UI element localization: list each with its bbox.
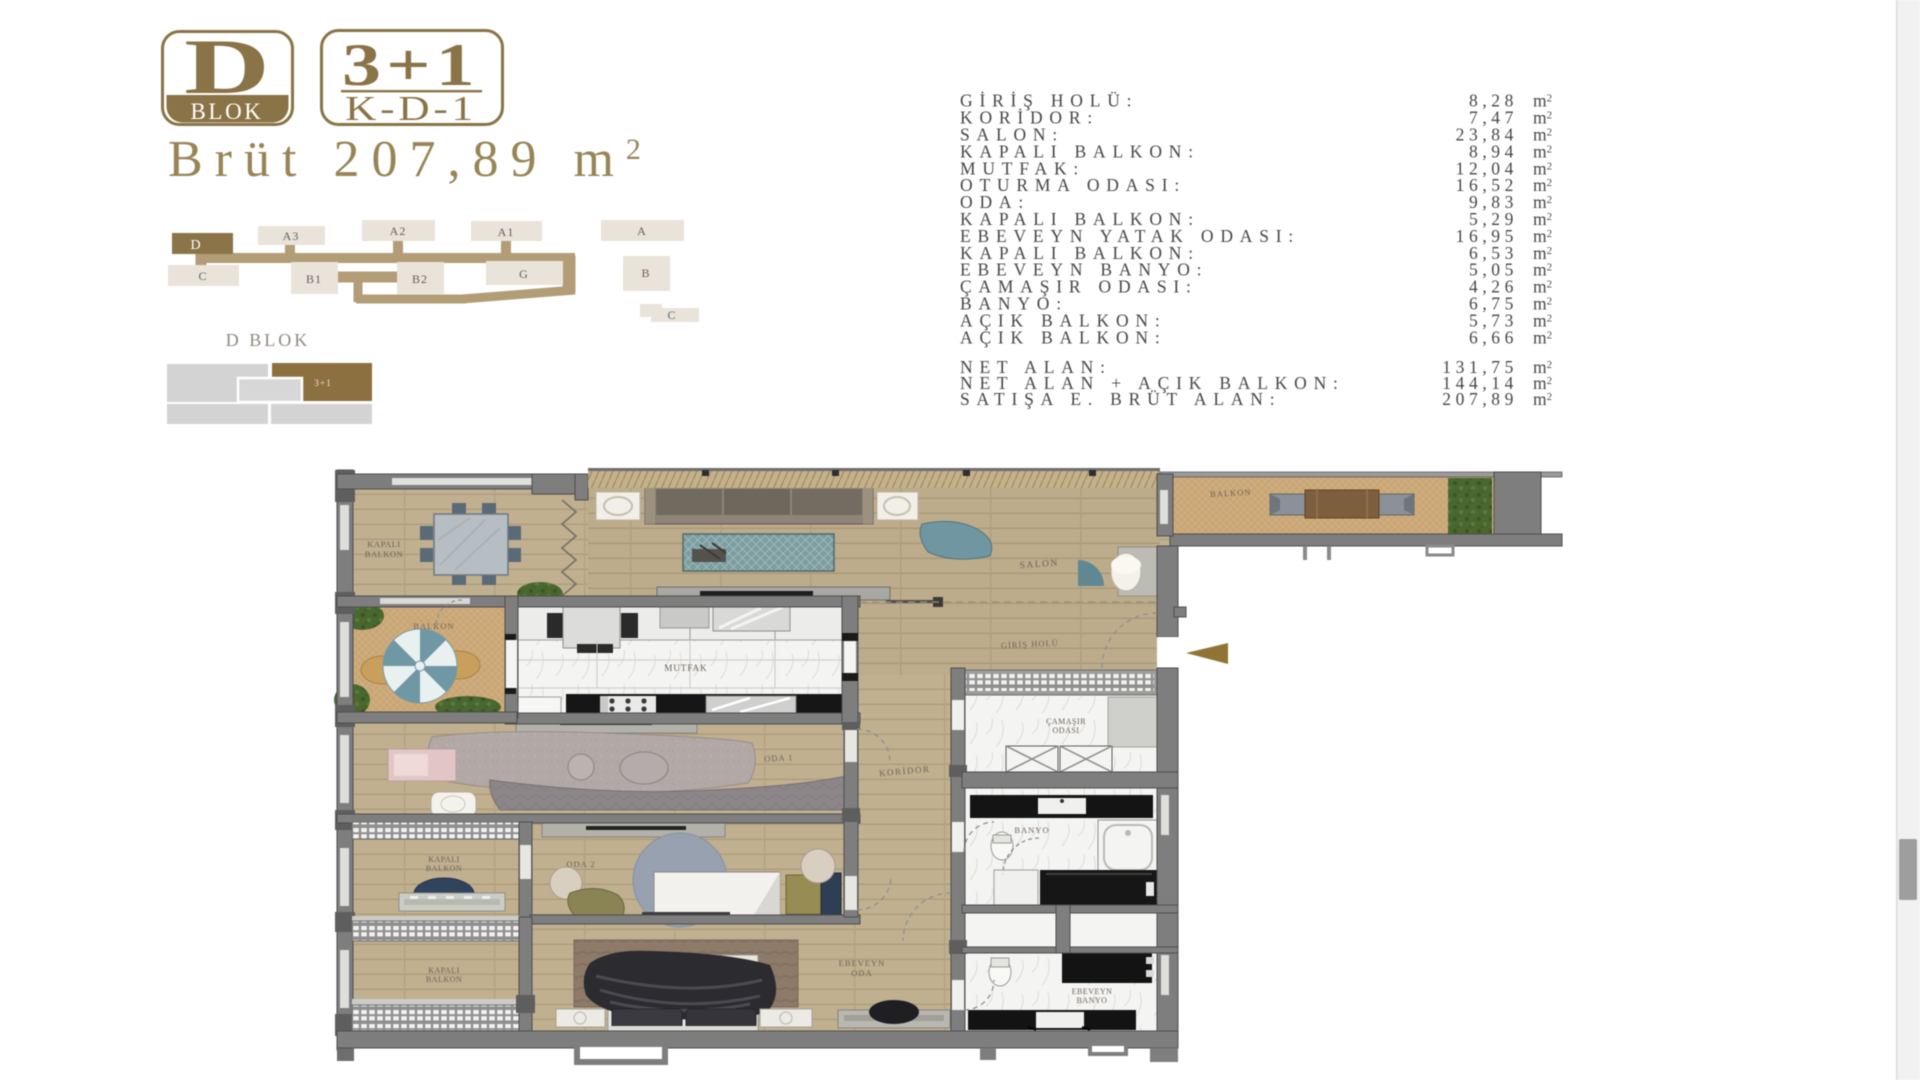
svg-text:A3: A3 bbox=[283, 229, 300, 243]
svg-text:ODA 2: ODA 2 bbox=[566, 859, 595, 869]
svg-text:SATIŞA E. BRÜT ALAN:: SATIŞA E. BRÜT ALAN: bbox=[960, 389, 1281, 409]
svg-text:KAPALI: KAPALI bbox=[428, 966, 460, 975]
svg-text:6,66: 6,66 bbox=[1469, 327, 1518, 347]
svg-text:D: D bbox=[190, 238, 201, 253]
svg-text:C: C bbox=[198, 269, 207, 283]
svg-text:BANYO: BANYO bbox=[1014, 825, 1049, 835]
svg-text:KAPALI: KAPALI bbox=[428, 855, 460, 864]
svg-text:G: G bbox=[519, 267, 529, 281]
svg-text:A2: A2 bbox=[390, 224, 407, 238]
svg-text:BANYO: BANYO bbox=[1077, 996, 1108, 1005]
svg-text:ODASI: ODASI bbox=[1053, 726, 1080, 735]
svg-text:B: B bbox=[641, 266, 650, 280]
svg-text:BALKON: BALKON bbox=[413, 621, 454, 631]
svg-text:AÇIK BALKON:: AÇIK BALKON: bbox=[960, 327, 1167, 347]
svg-text:D: D bbox=[184, 24, 270, 110]
svg-text:KAPALI: KAPALI bbox=[367, 539, 400, 549]
svg-text:207,89: 207,89 bbox=[1442, 389, 1518, 409]
svg-text:ÇAMAŞIR: ÇAMAŞIR bbox=[1046, 717, 1086, 726]
svg-text:ODA 1: ODA 1 bbox=[764, 752, 794, 764]
svg-text:ODA: ODA bbox=[851, 968, 872, 978]
svg-text:K-D-1: K-D-1 bbox=[345, 89, 477, 128]
svg-text:A1: A1 bbox=[498, 225, 515, 239]
svg-text:BLOK: BLOK bbox=[190, 99, 263, 124]
svg-text:BALKON: BALKON bbox=[426, 864, 462, 873]
svg-text:EBEVEYN: EBEVEYN bbox=[839, 958, 886, 968]
svg-text:Brüt 207,89 m2: Brüt 207,89 m2 bbox=[168, 131, 653, 188]
svg-text:B2: B2 bbox=[412, 272, 428, 286]
svg-text:A: A bbox=[637, 224, 647, 238]
svg-text:D BLOK: D BLOK bbox=[226, 330, 311, 350]
svg-text:BALKON: BALKON bbox=[426, 975, 462, 984]
svg-text:BALKON: BALKON bbox=[365, 549, 403, 559]
svg-text:EBEVEYN: EBEVEYN bbox=[1072, 987, 1113, 996]
svg-text:C: C bbox=[667, 308, 676, 322]
svg-text:3+1: 3+1 bbox=[314, 379, 332, 389]
svg-text:MUTFAK: MUTFAK bbox=[664, 663, 707, 673]
svg-text:B1: B1 bbox=[306, 272, 322, 286]
